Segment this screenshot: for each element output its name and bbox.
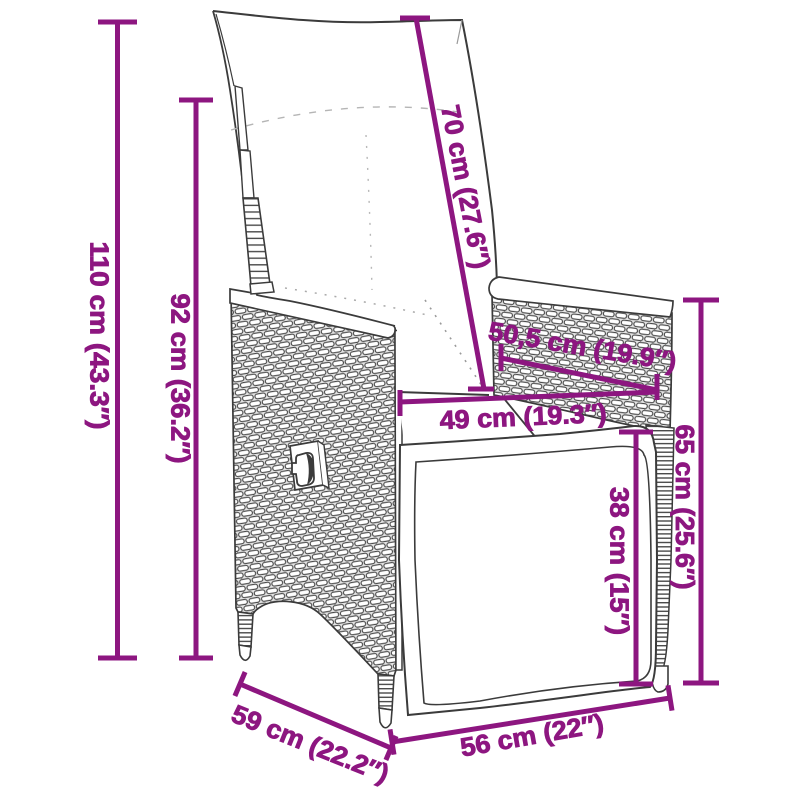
svg-text:110 cm (43.3″): 110 cm (43.3″) (85, 242, 115, 430)
svg-text:38 cm (15″): 38 cm (15″) (605, 487, 635, 635)
svg-text:65 cm (25.6″): 65 cm (25.6″) (670, 425, 700, 590)
svg-text:92 cm (36.2″): 92 cm (36.2″) (166, 294, 196, 464)
